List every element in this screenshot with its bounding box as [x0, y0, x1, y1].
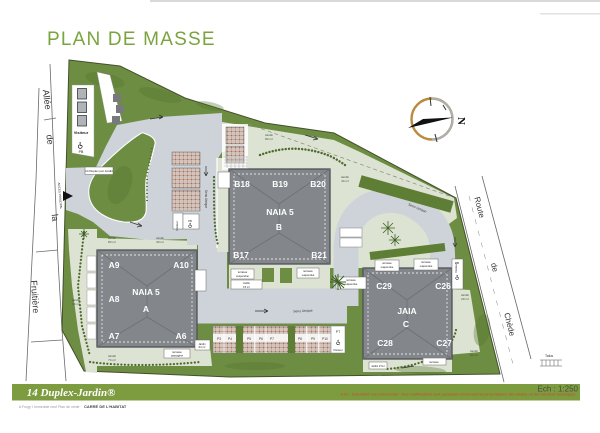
svg-text:B19: B19: [272, 179, 288, 189]
svg-text:B17: B17: [233, 250, 249, 260]
svg-text:83 m²: 83 m²: [265, 137, 273, 141]
svg-text:suspendue: suspendue: [236, 274, 249, 278]
svg-text:B21: B21: [311, 250, 327, 260]
svg-text:A9: A9: [109, 260, 120, 270]
svg-text:Jardin: Jardin: [243, 281, 251, 285]
svg-text:91 m²: 91 m²: [470, 353, 478, 357]
svg-text:30 m²: 30 m²: [156, 240, 164, 244]
svg-text:Visiteur: Visiteur: [74, 130, 89, 135]
svg-text:A8: A8: [109, 294, 120, 304]
svg-text:P5: P5: [247, 337, 251, 341]
svg-text:suspendue: suspendue: [345, 282, 358, 286]
svg-text:paysagère: paysagère: [171, 354, 184, 358]
svg-text:P9: P9: [311, 337, 315, 341]
svg-text:suspendue: suspendue: [302, 273, 315, 277]
svg-text:terrasse: terrasse: [421, 260, 431, 264]
svg-text:A: A: [143, 304, 149, 314]
svg-text:suspendue: suspendue: [420, 264, 433, 268]
svg-text:Sens Unique: Sens Unique: [204, 190, 208, 208]
svg-text:P6: P6: [259, 337, 263, 341]
svg-text:A6: A6: [176, 331, 187, 341]
svg-text:JAIA: JAIA: [397, 306, 416, 316]
svg-text:A7: A7: [109, 331, 120, 341]
svg-text:P7: P7: [270, 337, 274, 341]
svg-text:PLAN DE MASSE: PLAN DE MASSE: [47, 29, 216, 50]
svg-text:Visiteur: Visiteur: [333, 348, 343, 352]
svg-text:terrasse: terrasse: [303, 269, 313, 273]
svg-text:terrasse: terrasse: [172, 350, 182, 354]
svg-text:C: C: [403, 319, 409, 329]
svg-text:C29: C29: [376, 281, 392, 291]
svg-text:la: la: [50, 214, 61, 222]
svg-text:14 m²: 14 m²: [72, 302, 80, 306]
svg-text:Talus: Talus: [545, 354, 553, 358]
svg-text:PB: PB: [79, 150, 84, 154]
svg-text:B18: B18: [234, 179, 250, 189]
svg-text:de: de: [44, 134, 55, 145]
svg-text:C27: C27: [436, 338, 452, 348]
svg-text:44 m²: 44 m²: [341, 179, 349, 183]
svg-text:NAIA 5: NAIA 5: [132, 287, 160, 297]
svg-text:20 m²: 20 m²: [461, 297, 469, 301]
svg-text:14 Duplex par Jardin: 14 Duplex par Jardin: [85, 169, 113, 173]
svg-text:P8: P8: [298, 337, 302, 341]
svg-text:V.01 - Document non commercial: V.01 - Document non commercial - Des mod…: [341, 392, 576, 397]
svg-text:B: B: [276, 222, 282, 232]
svg-text:suspendue: suspendue: [381, 265, 394, 269]
svg-text:PB: PB: [455, 261, 459, 265]
svg-text:terrasse: terrasse: [346, 278, 356, 282]
svg-text:84 m²: 84 m²: [108, 240, 116, 244]
svg-text:P10: P10: [322, 337, 328, 341]
svg-text:C28: C28: [377, 338, 393, 348]
svg-text:14 Duplex-Jardin®: 14 Duplex-Jardin®: [27, 387, 116, 399]
svg-text:terrasse: terrasse: [238, 270, 248, 274]
svg-text:NAIA 5: NAIA 5: [266, 207, 294, 217]
svg-text:64 m²: 64 m²: [199, 345, 206, 349]
svg-text:terrasse: terrasse: [382, 261, 392, 265]
svg-text:A10: A10: [173, 260, 189, 270]
svg-text:PB: PB: [188, 219, 192, 223]
svg-text:Jardin 27m²: Jardin 27m²: [371, 364, 385, 368]
svg-text:Visiteur: Visiteur: [175, 221, 179, 231]
svg-text:P4: P4: [228, 337, 232, 341]
svg-text:15 m²: 15 m²: [243, 285, 250, 289]
svg-text:P3: P3: [217, 337, 221, 341]
svg-text:terrasse: terrasse: [429, 360, 439, 364]
svg-text:A Frugy I Immeuble neuf Plan d: A Frugy I Immeuble neuf Plan de vente: [19, 405, 80, 409]
svg-text:C26: C26: [435, 281, 451, 291]
svg-text:N: N: [455, 117, 467, 125]
svg-text:CARRÉ DE L'HABITAT: CARRÉ DE L'HABITAT: [84, 404, 127, 409]
svg-text:74 m²: 74 m²: [108, 358, 116, 362]
svg-text:B20: B20: [310, 179, 326, 189]
